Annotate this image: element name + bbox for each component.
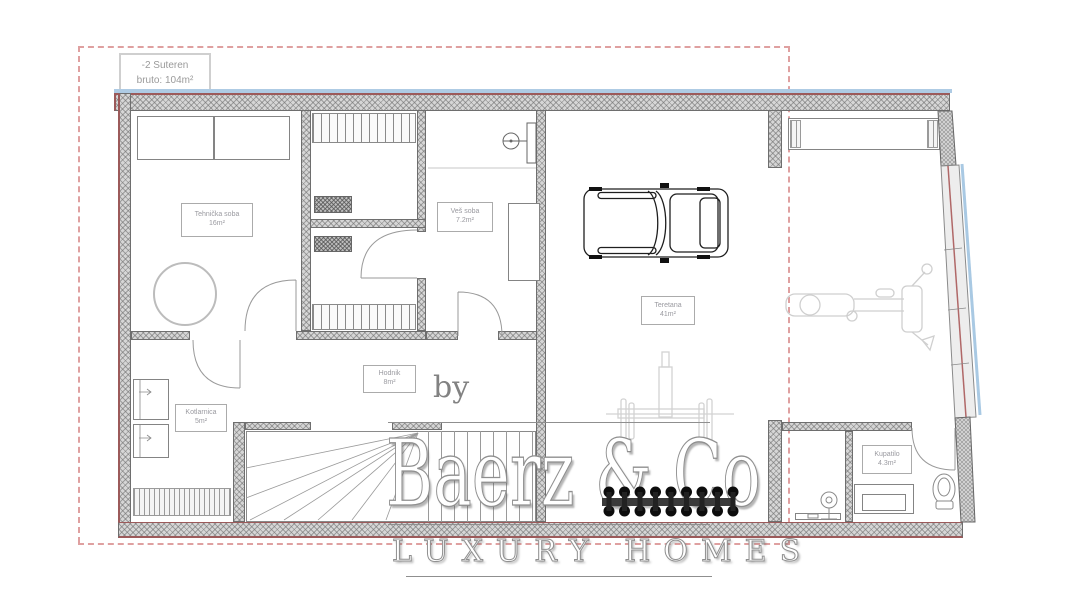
floor-plan-canvas: -2 Suteren bruto: 104m² Tehnička soba 16… [0,0,1085,604]
dumbbell-layer [0,0,1085,604]
dumbbell-rack-icon [602,487,739,517]
